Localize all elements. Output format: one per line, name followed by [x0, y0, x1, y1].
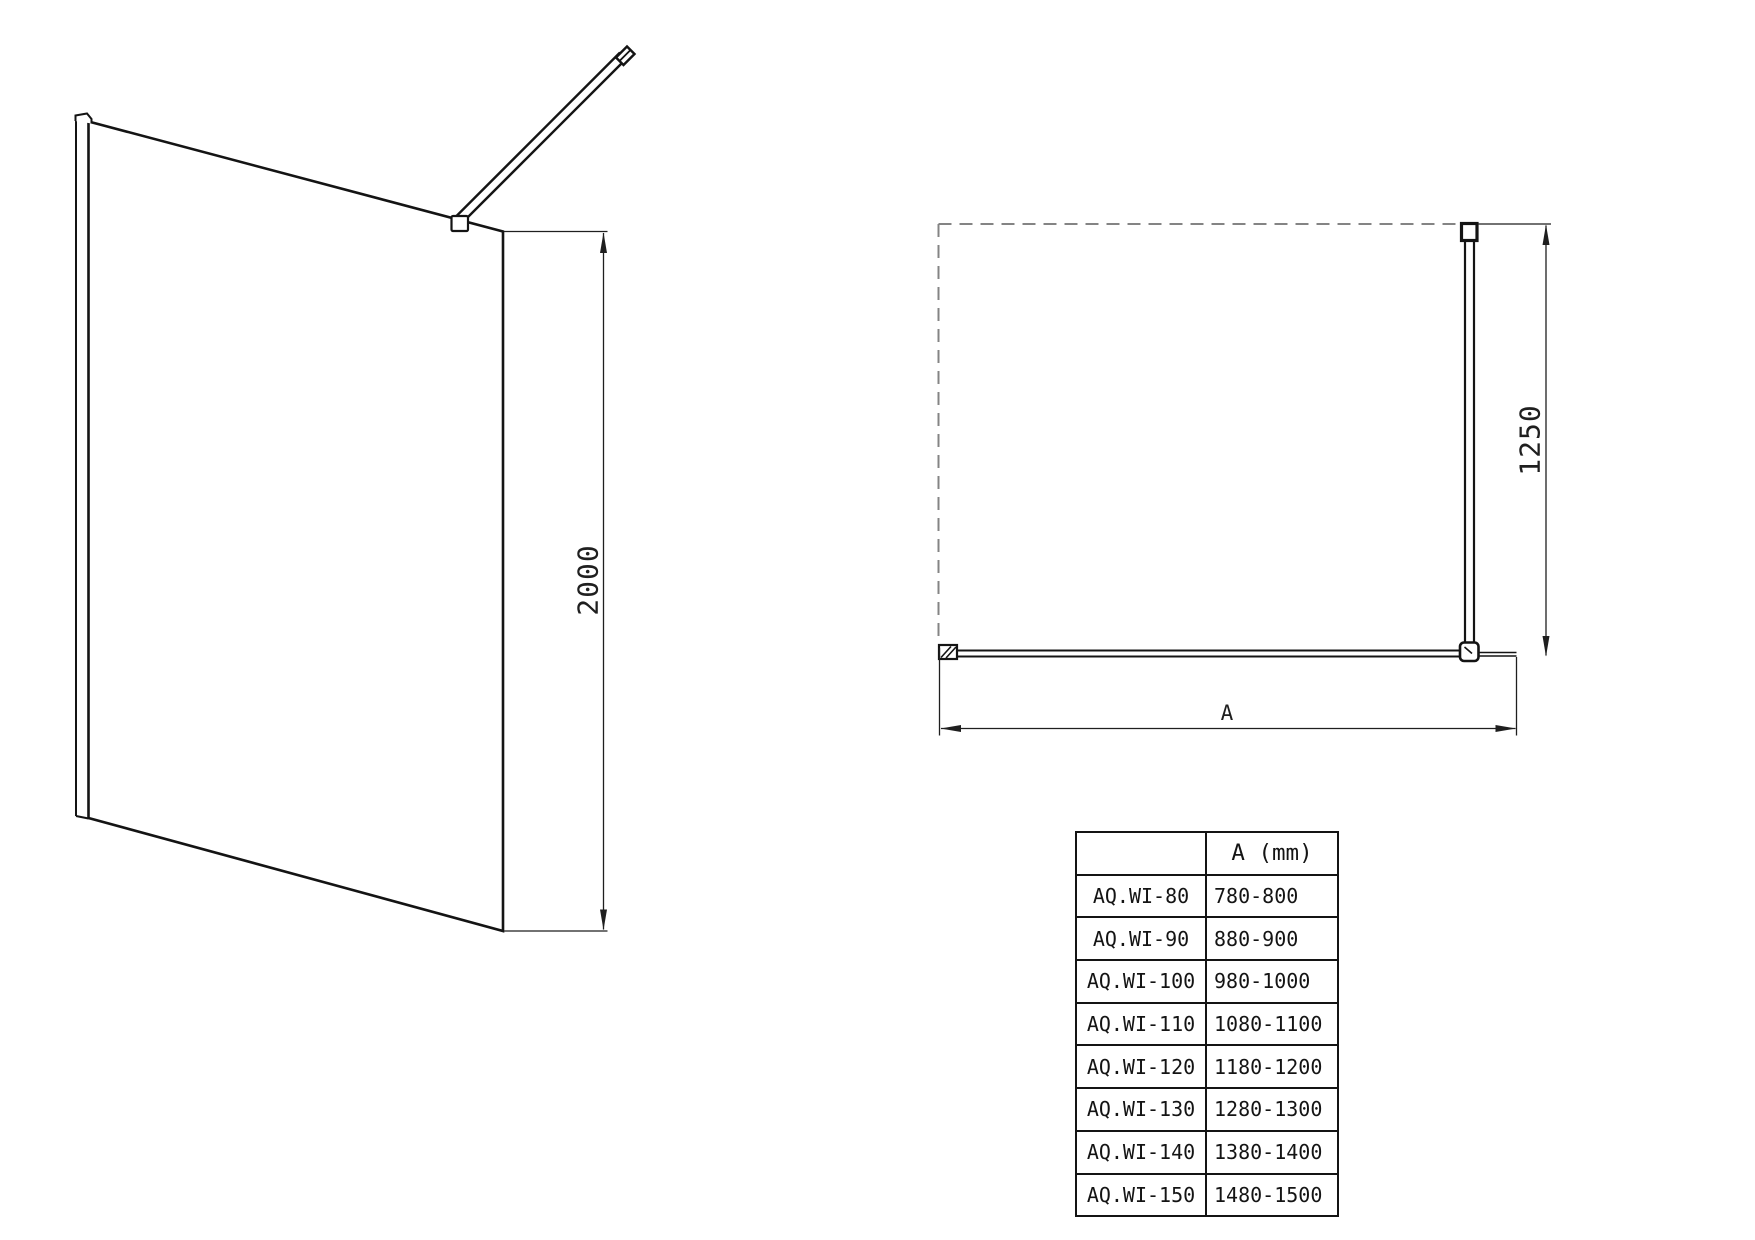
depth-dimension-label: 1250 — [1514, 404, 1547, 475]
size-table-header-a: A (mm) — [1206, 832, 1338, 875]
model-cell: AQ.WI-100 — [1076, 960, 1206, 1003]
support-bar-wall-cap-plan — [1462, 224, 1478, 241]
plan-view-walls-dashed — [939, 224, 1461, 643]
size-table-header-model — [1076, 832, 1206, 875]
model-cell: AQ.WI-140 — [1076, 1131, 1206, 1174]
technical-drawing-page: 2000 1250 A A (mm) AQ.WI-80 780-800 AQ.W… — [0, 0, 1755, 1240]
table-row: AQ.WI-80 780-800 — [1076, 875, 1338, 918]
plan-view-support-bar — [1460, 224, 1479, 662]
range-cell: 1480-1500 — [1206, 1174, 1338, 1217]
drawing-linework — [0, 0, 1755, 1240]
range-cell: 1180-1200 — [1206, 1045, 1338, 1088]
glass-panel-face — [89, 122, 504, 932]
range-cell: 1080-1100 — [1206, 1003, 1338, 1046]
table-row: AQ.WI-150 1480-1500 — [1076, 1174, 1338, 1217]
table-row: AQ.WI-130 1280-1300 — [1076, 1088, 1338, 1131]
model-cell: AQ.WI-120 — [1076, 1045, 1206, 1088]
table-row: AQ.WI-120 1180-1200 — [1076, 1045, 1338, 1088]
support-bar-inner-line — [463, 59, 627, 223]
range-cell: 880-900 — [1206, 917, 1338, 960]
model-cell: AQ.WI-130 — [1076, 1088, 1206, 1131]
arrowhead-1250-down — [1543, 636, 1550, 657]
size-table-header-row: A (mm) — [1076, 832, 1338, 875]
width-dimension-label: A — [1221, 701, 1234, 725]
range-cell: 780-800 — [1206, 875, 1338, 918]
height-dimension-label: 2000 — [572, 544, 605, 615]
glass-clamp-bracket — [452, 216, 469, 231]
arrowhead-A-left — [941, 725, 962, 732]
left-view-glass-panel — [76, 114, 504, 932]
left-view-support-bar — [452, 47, 635, 232]
arrowhead-1250-up — [1543, 225, 1550, 246]
range-cell: 980-1000 — [1206, 960, 1338, 1003]
model-cell: AQ.WI-80 — [1076, 875, 1206, 918]
wall-profile-top-cap — [76, 114, 92, 124]
model-cell: AQ.WI-150 — [1076, 1174, 1206, 1217]
plan-view-glass — [939, 645, 1517, 659]
wall-profile-bottom-cap — [76, 816, 89, 819]
arrowhead-up — [600, 233, 607, 254]
range-cell: 1280-1300 — [1206, 1088, 1338, 1131]
table-row: AQ.WI-110 1080-1100 — [1076, 1003, 1338, 1046]
size-table: A (mm) AQ.WI-80 780-800 AQ.WI-90 880-900… — [1075, 831, 1339, 1217]
arrowhead-down — [600, 910, 607, 931]
table-row: AQ.WI-90 880-900 — [1076, 917, 1338, 960]
model-cell: AQ.WI-90 — [1076, 917, 1206, 960]
table-row: AQ.WI-100 980-1000 — [1076, 960, 1338, 1003]
range-cell: 1380-1400 — [1206, 1131, 1338, 1174]
arrowhead-A-right — [1496, 725, 1517, 732]
support-bar-outer-line — [456, 53, 620, 217]
model-cell: AQ.WI-110 — [1076, 1003, 1206, 1046]
table-row: AQ.WI-140 1380-1400 — [1076, 1131, 1338, 1174]
